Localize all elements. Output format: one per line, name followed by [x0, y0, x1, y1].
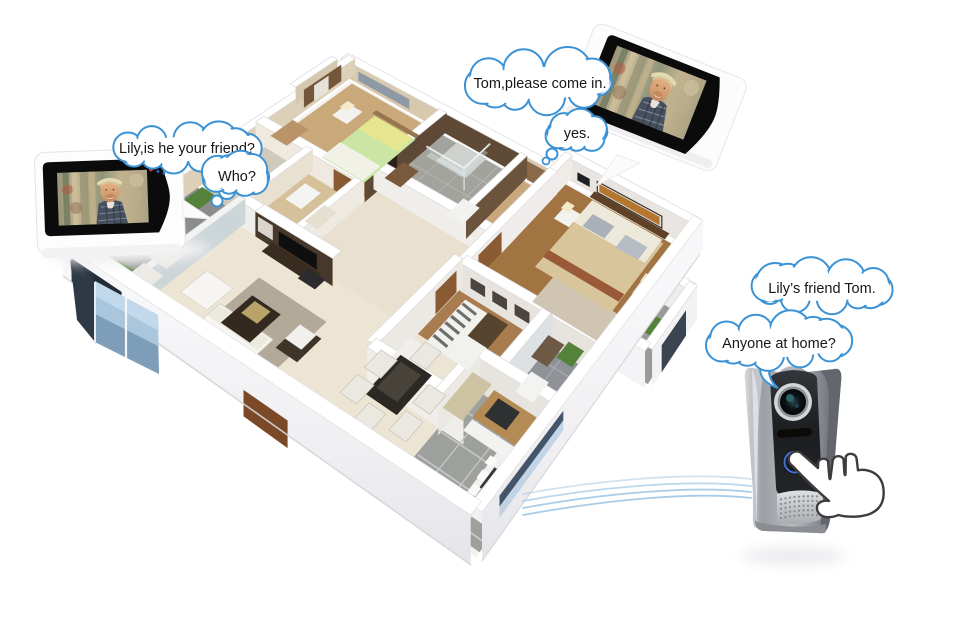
svg-text:Anyone at home?: Anyone at home?: [722, 336, 836, 352]
svg-text:yes.: yes.: [564, 126, 591, 142]
svg-text:Tom,please come in.: Tom,please come in.: [474, 76, 607, 92]
svg-text:Lily’s friend Tom.: Lily’s friend Tom.: [768, 281, 875, 297]
svg-text:Who?: Who?: [218, 169, 256, 185]
